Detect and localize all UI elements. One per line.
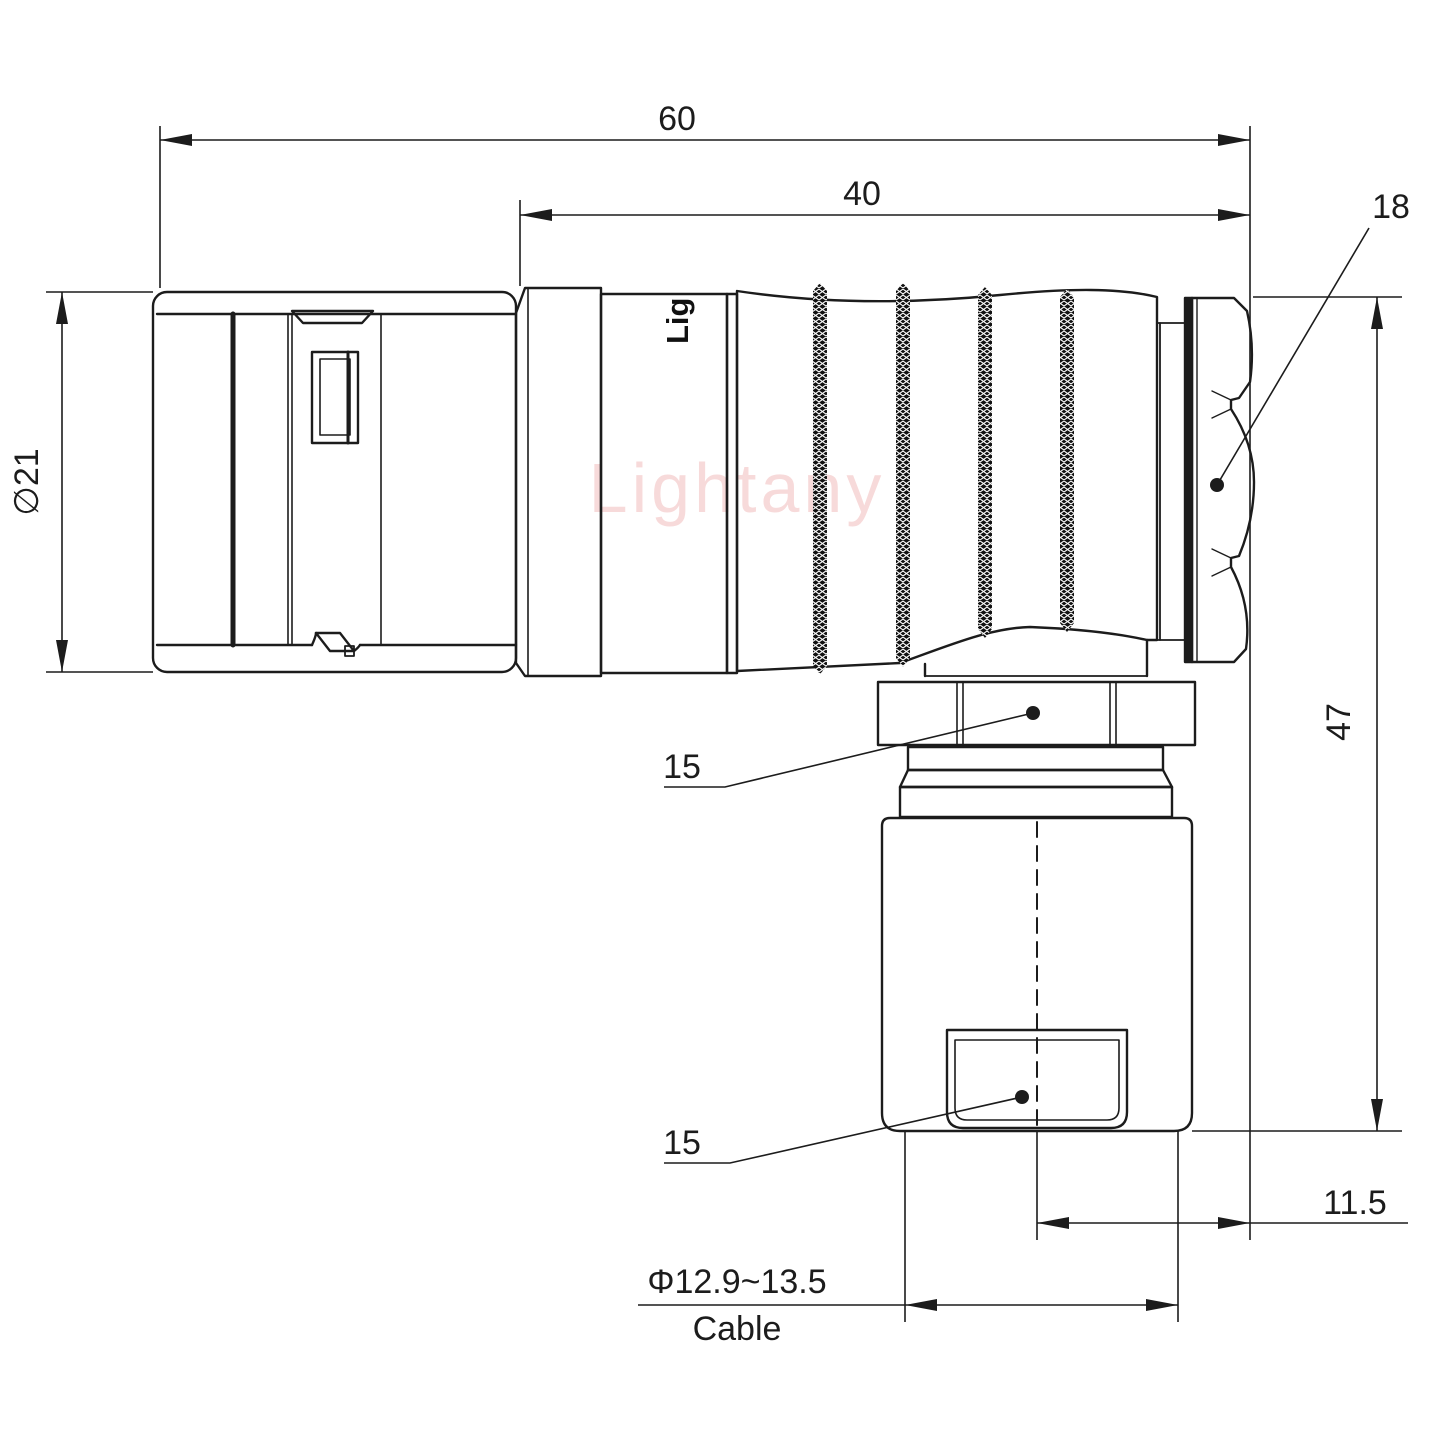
connector-dimension-drawing: Lightany bbox=[0, 0, 1440, 1440]
front-shell bbox=[153, 292, 516, 672]
body-marking: Lig bbox=[660, 298, 695, 345]
dimension-labels: 60 40 18 ∅21 15 15 47 11.5 Φ12.9~13.5 Ca… bbox=[8, 100, 1410, 1348]
leg-steps bbox=[900, 747, 1172, 817]
dim-overall-length: 60 bbox=[658, 100, 696, 138]
leader-15-gland bbox=[664, 713, 1033, 787]
dim-cable-offset: 11.5 bbox=[1323, 1184, 1387, 1222]
dim-cable-clamp: 15 bbox=[663, 1124, 701, 1162]
label-cable: Cable bbox=[693, 1310, 782, 1348]
leader-18 bbox=[1217, 228, 1369, 485]
dim-overall-height: 47 bbox=[1320, 703, 1358, 741]
latch-window bbox=[312, 352, 358, 443]
dim-rear-length: 40 bbox=[843, 175, 881, 213]
drawing-canvas: Lightany bbox=[0, 0, 1440, 1440]
latch-tab bbox=[312, 633, 360, 656]
dim-cable-diameter: Φ12.9~13.5 bbox=[647, 1263, 826, 1301]
dim-front-diameter: ∅21 bbox=[8, 448, 46, 515]
dim-gland-nut: 15 bbox=[663, 748, 701, 786]
coupling-nut bbox=[1157, 298, 1254, 662]
cable-barrel bbox=[882, 818, 1192, 1131]
dim-coupling-nut: 18 bbox=[1372, 188, 1410, 226]
